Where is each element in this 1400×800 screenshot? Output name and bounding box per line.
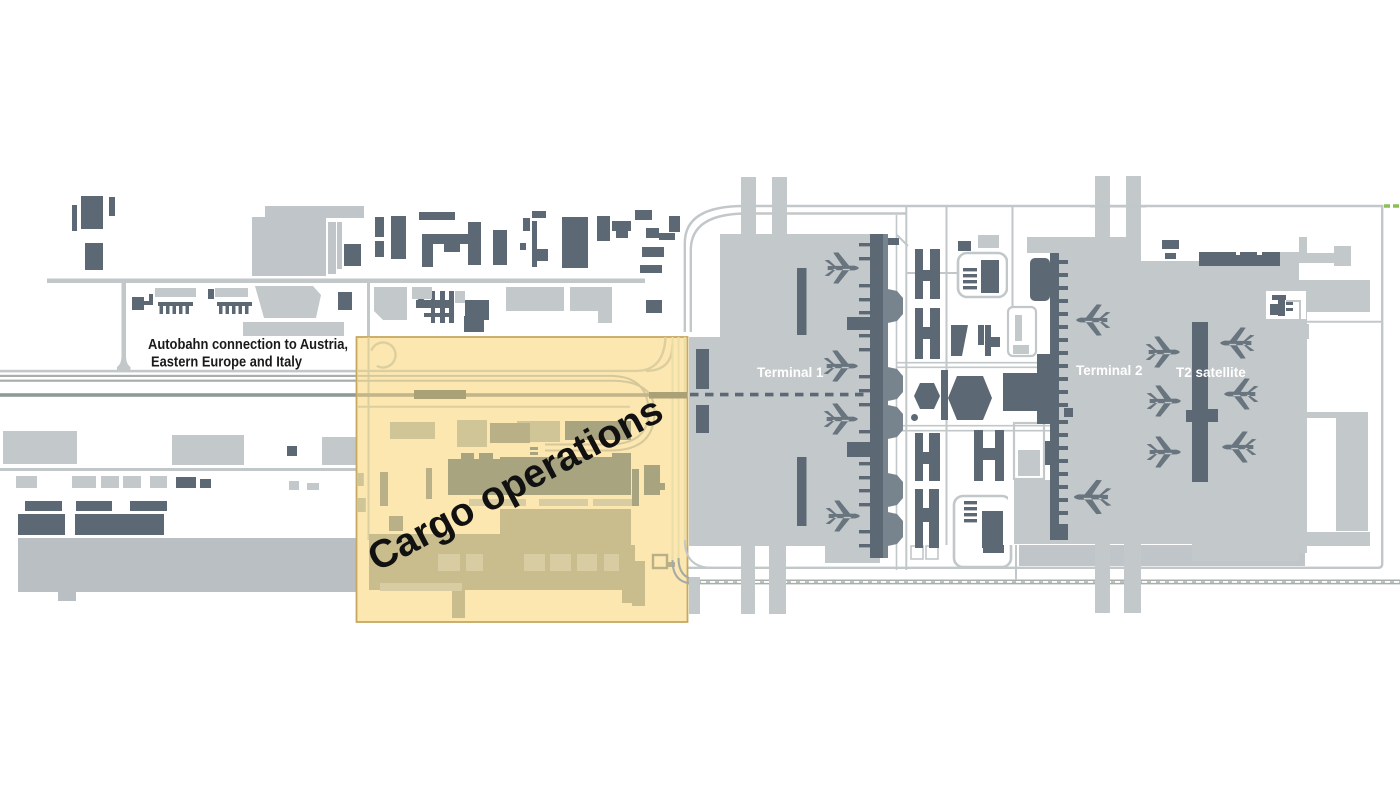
svg-text:Terminal 1: Terminal 1 [757, 365, 824, 380]
svg-text:Eastern Europe and Italy: Eastern Europe and Italy [151, 354, 303, 371]
svg-text:T2 satellite: T2 satellite [1176, 365, 1246, 380]
svg-text:Terminal 2: Terminal 2 [1076, 363, 1143, 378]
svg-text:Autobahn connection to Austria: Autobahn connection to Austria, [148, 336, 348, 353]
